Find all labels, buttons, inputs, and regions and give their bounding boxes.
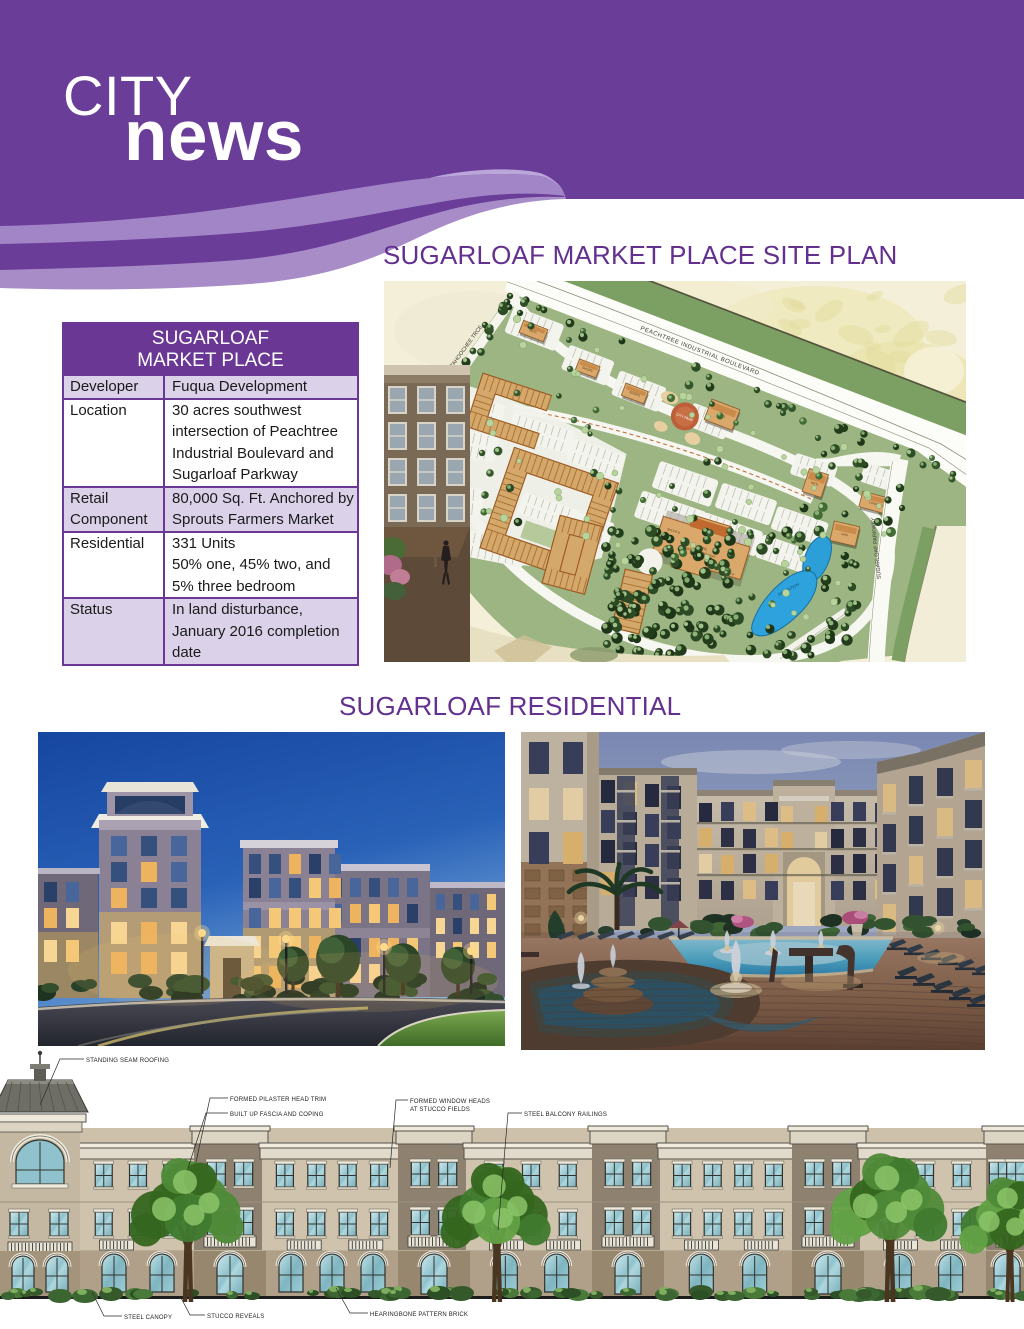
svg-text:HEARINGBONE PATTERN BRICK: HEARINGBONE PATTERN BRICK [370,1312,468,1318]
svg-text:STEEL BALCONY RAILINGS: STEEL BALCONY RAILINGS [524,1112,607,1118]
svg-text:STANDING SEAM ROOFING: STANDING SEAM ROOFING [86,1058,169,1064]
svg-text:STEEL CANOPY: STEEL CANOPY [124,1315,172,1321]
svg-text:news: news [124,97,304,176]
svg-text:FORMED PILASTER HEAD TRIM: FORMED PILASTER HEAD TRIM [230,1097,326,1103]
svg-text:STUCCO REVEALS: STUCCO REVEALS [207,1314,264,1320]
svg-text:FORMED WINDOW HEADS: FORMED WINDOW HEADS [410,1099,490,1105]
svg-text:AT STUCCO FIELDS: AT STUCCO FIELDS [410,1107,470,1113]
svg-text:BUILT UP FASCIA AND COPING: BUILT UP FASCIA AND COPING [230,1112,324,1118]
